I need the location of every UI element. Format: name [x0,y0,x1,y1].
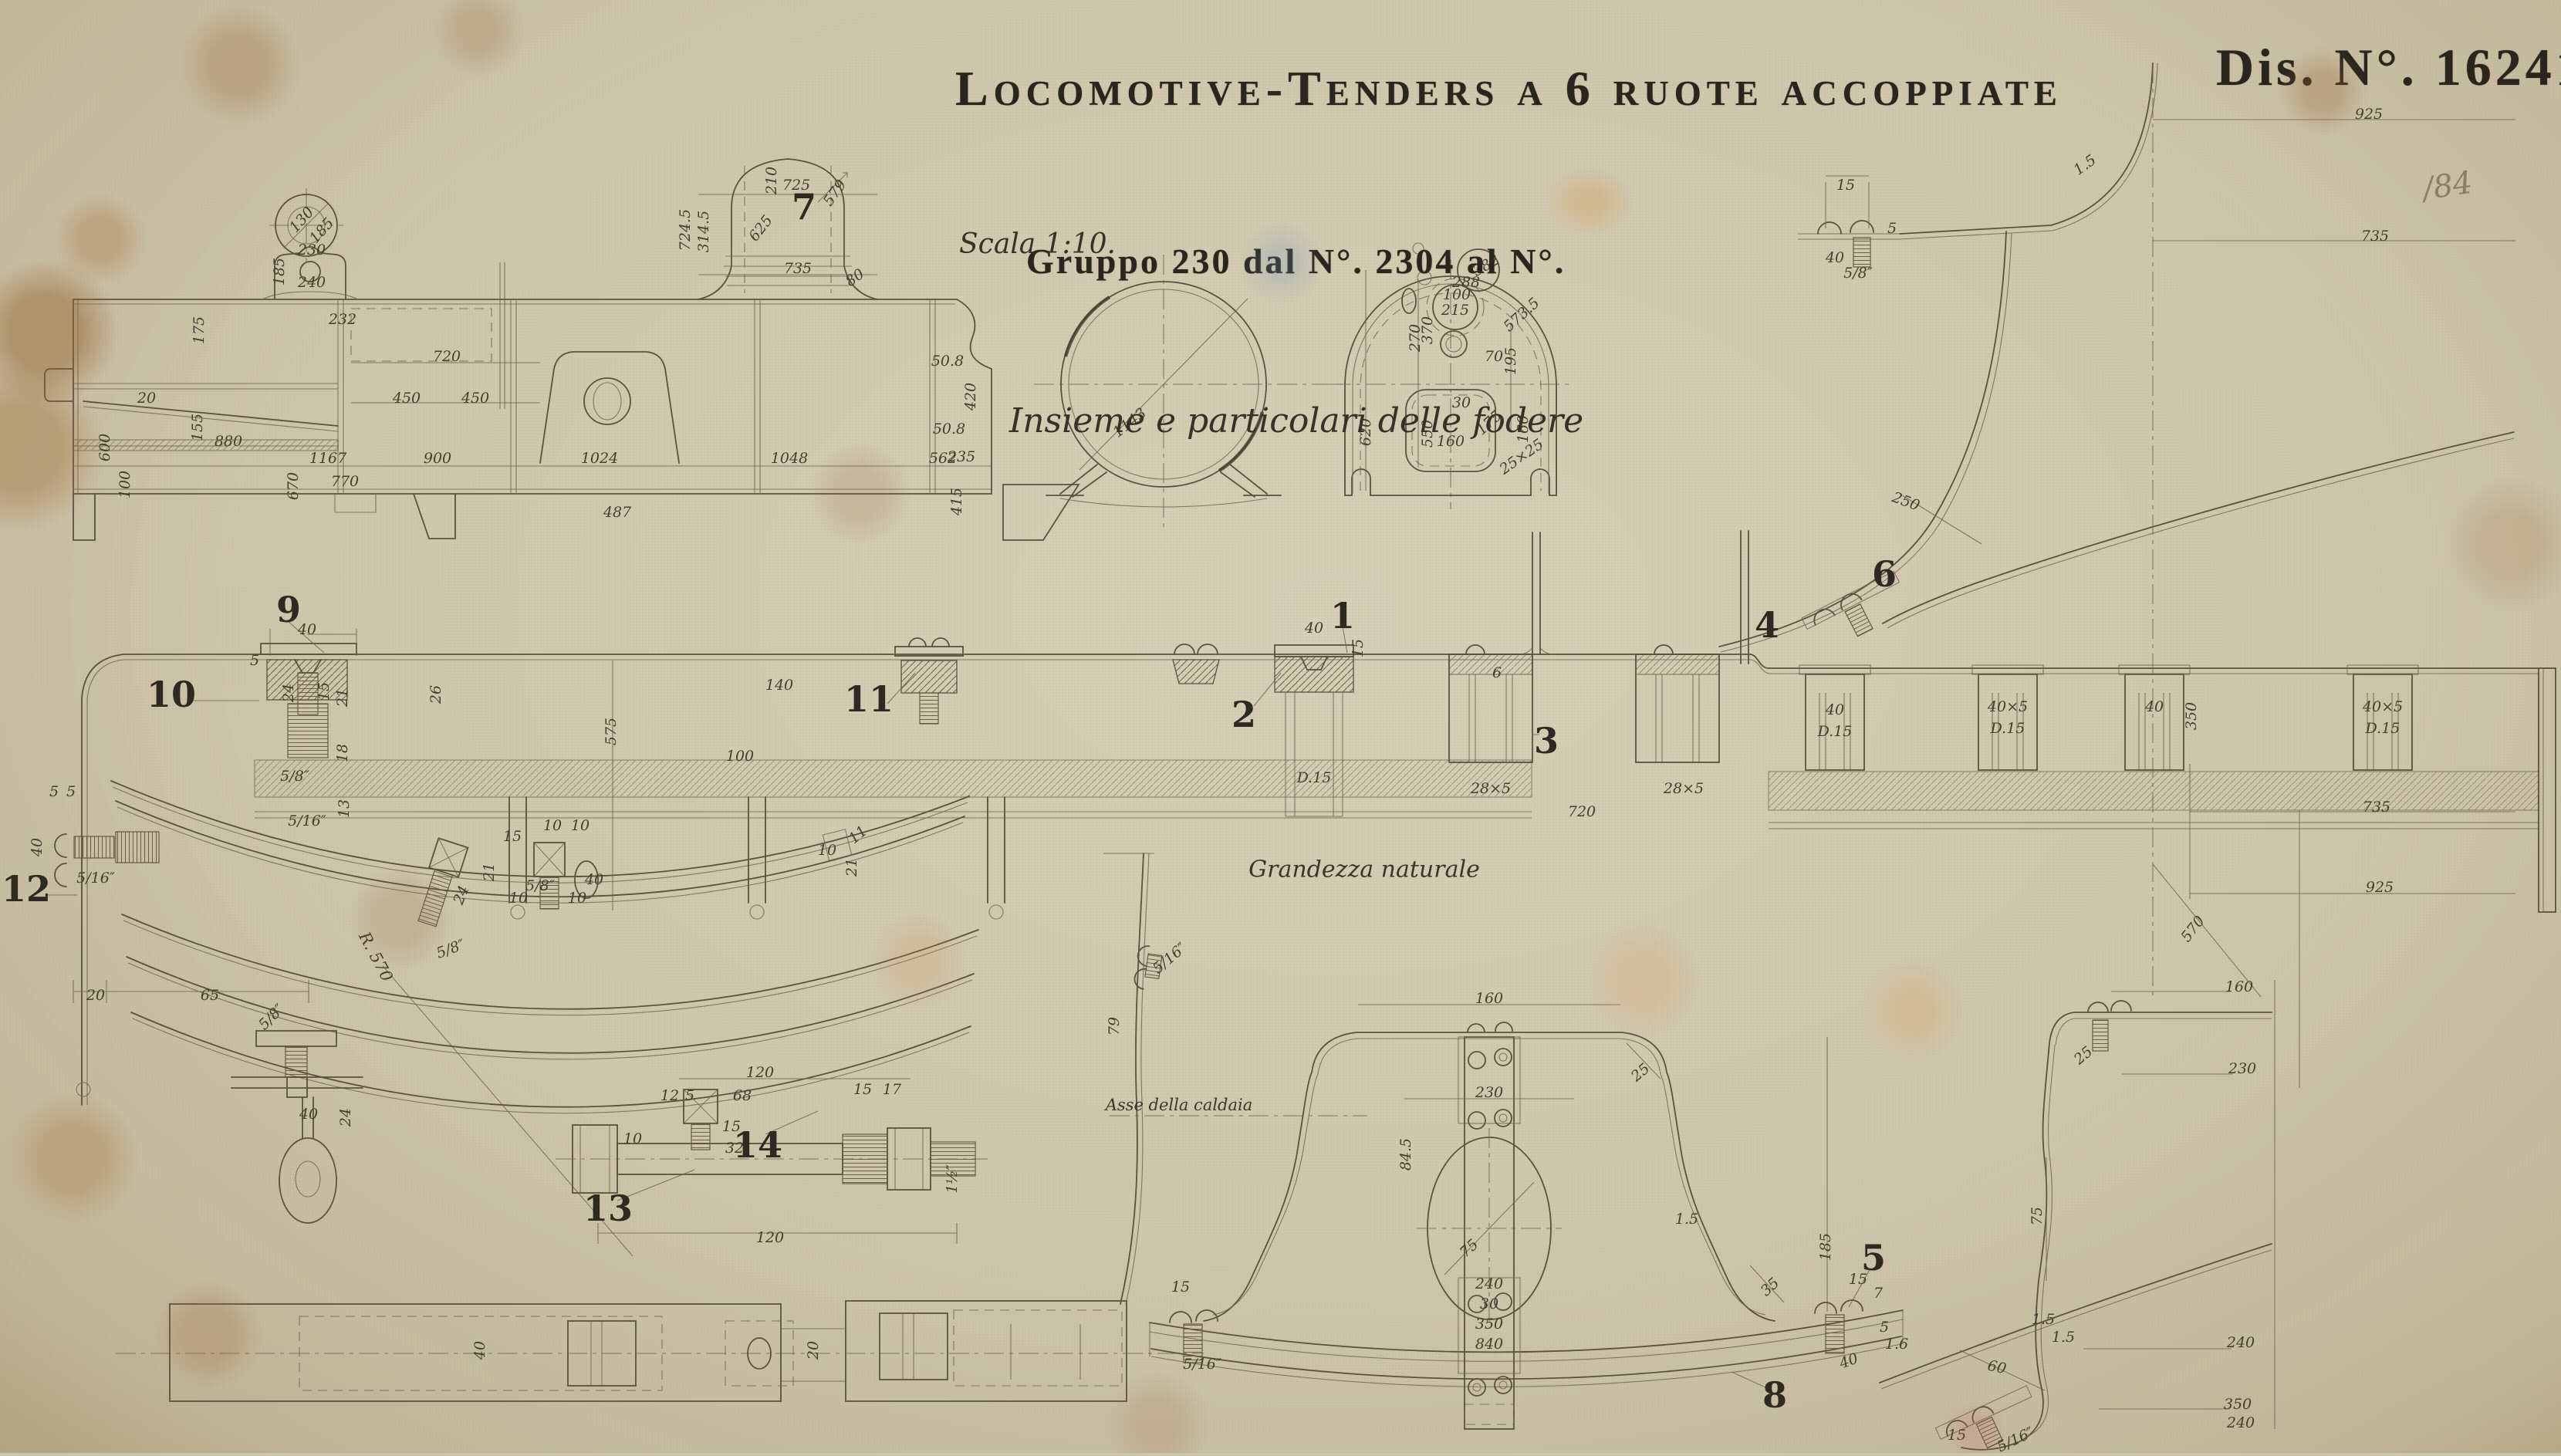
drawing-description: Insieme e particolari delle fodere [1003,401,1590,441]
view-side-elevation [45,159,1079,540]
view-cleading-plate [1103,853,1903,1429]
view-corner-sheets [1719,63,2515,997]
drawing-title: Locomotive-Tenders a 6 ruote accoppiate [955,60,1596,117]
view-side-sheet-profile [1880,980,2275,1453]
pencil-note: /84 [2421,165,2475,208]
drawing-number: Dis. N°. 16241 [2216,37,2561,98]
drawing-canvas [0,0,2561,1453]
scale-label: Scala 1:10. [959,228,1116,260]
view-arc-details [111,781,1204,1401]
view-boiler-ring [1034,255,1346,532]
view-firebox-section [1331,243,1570,509]
